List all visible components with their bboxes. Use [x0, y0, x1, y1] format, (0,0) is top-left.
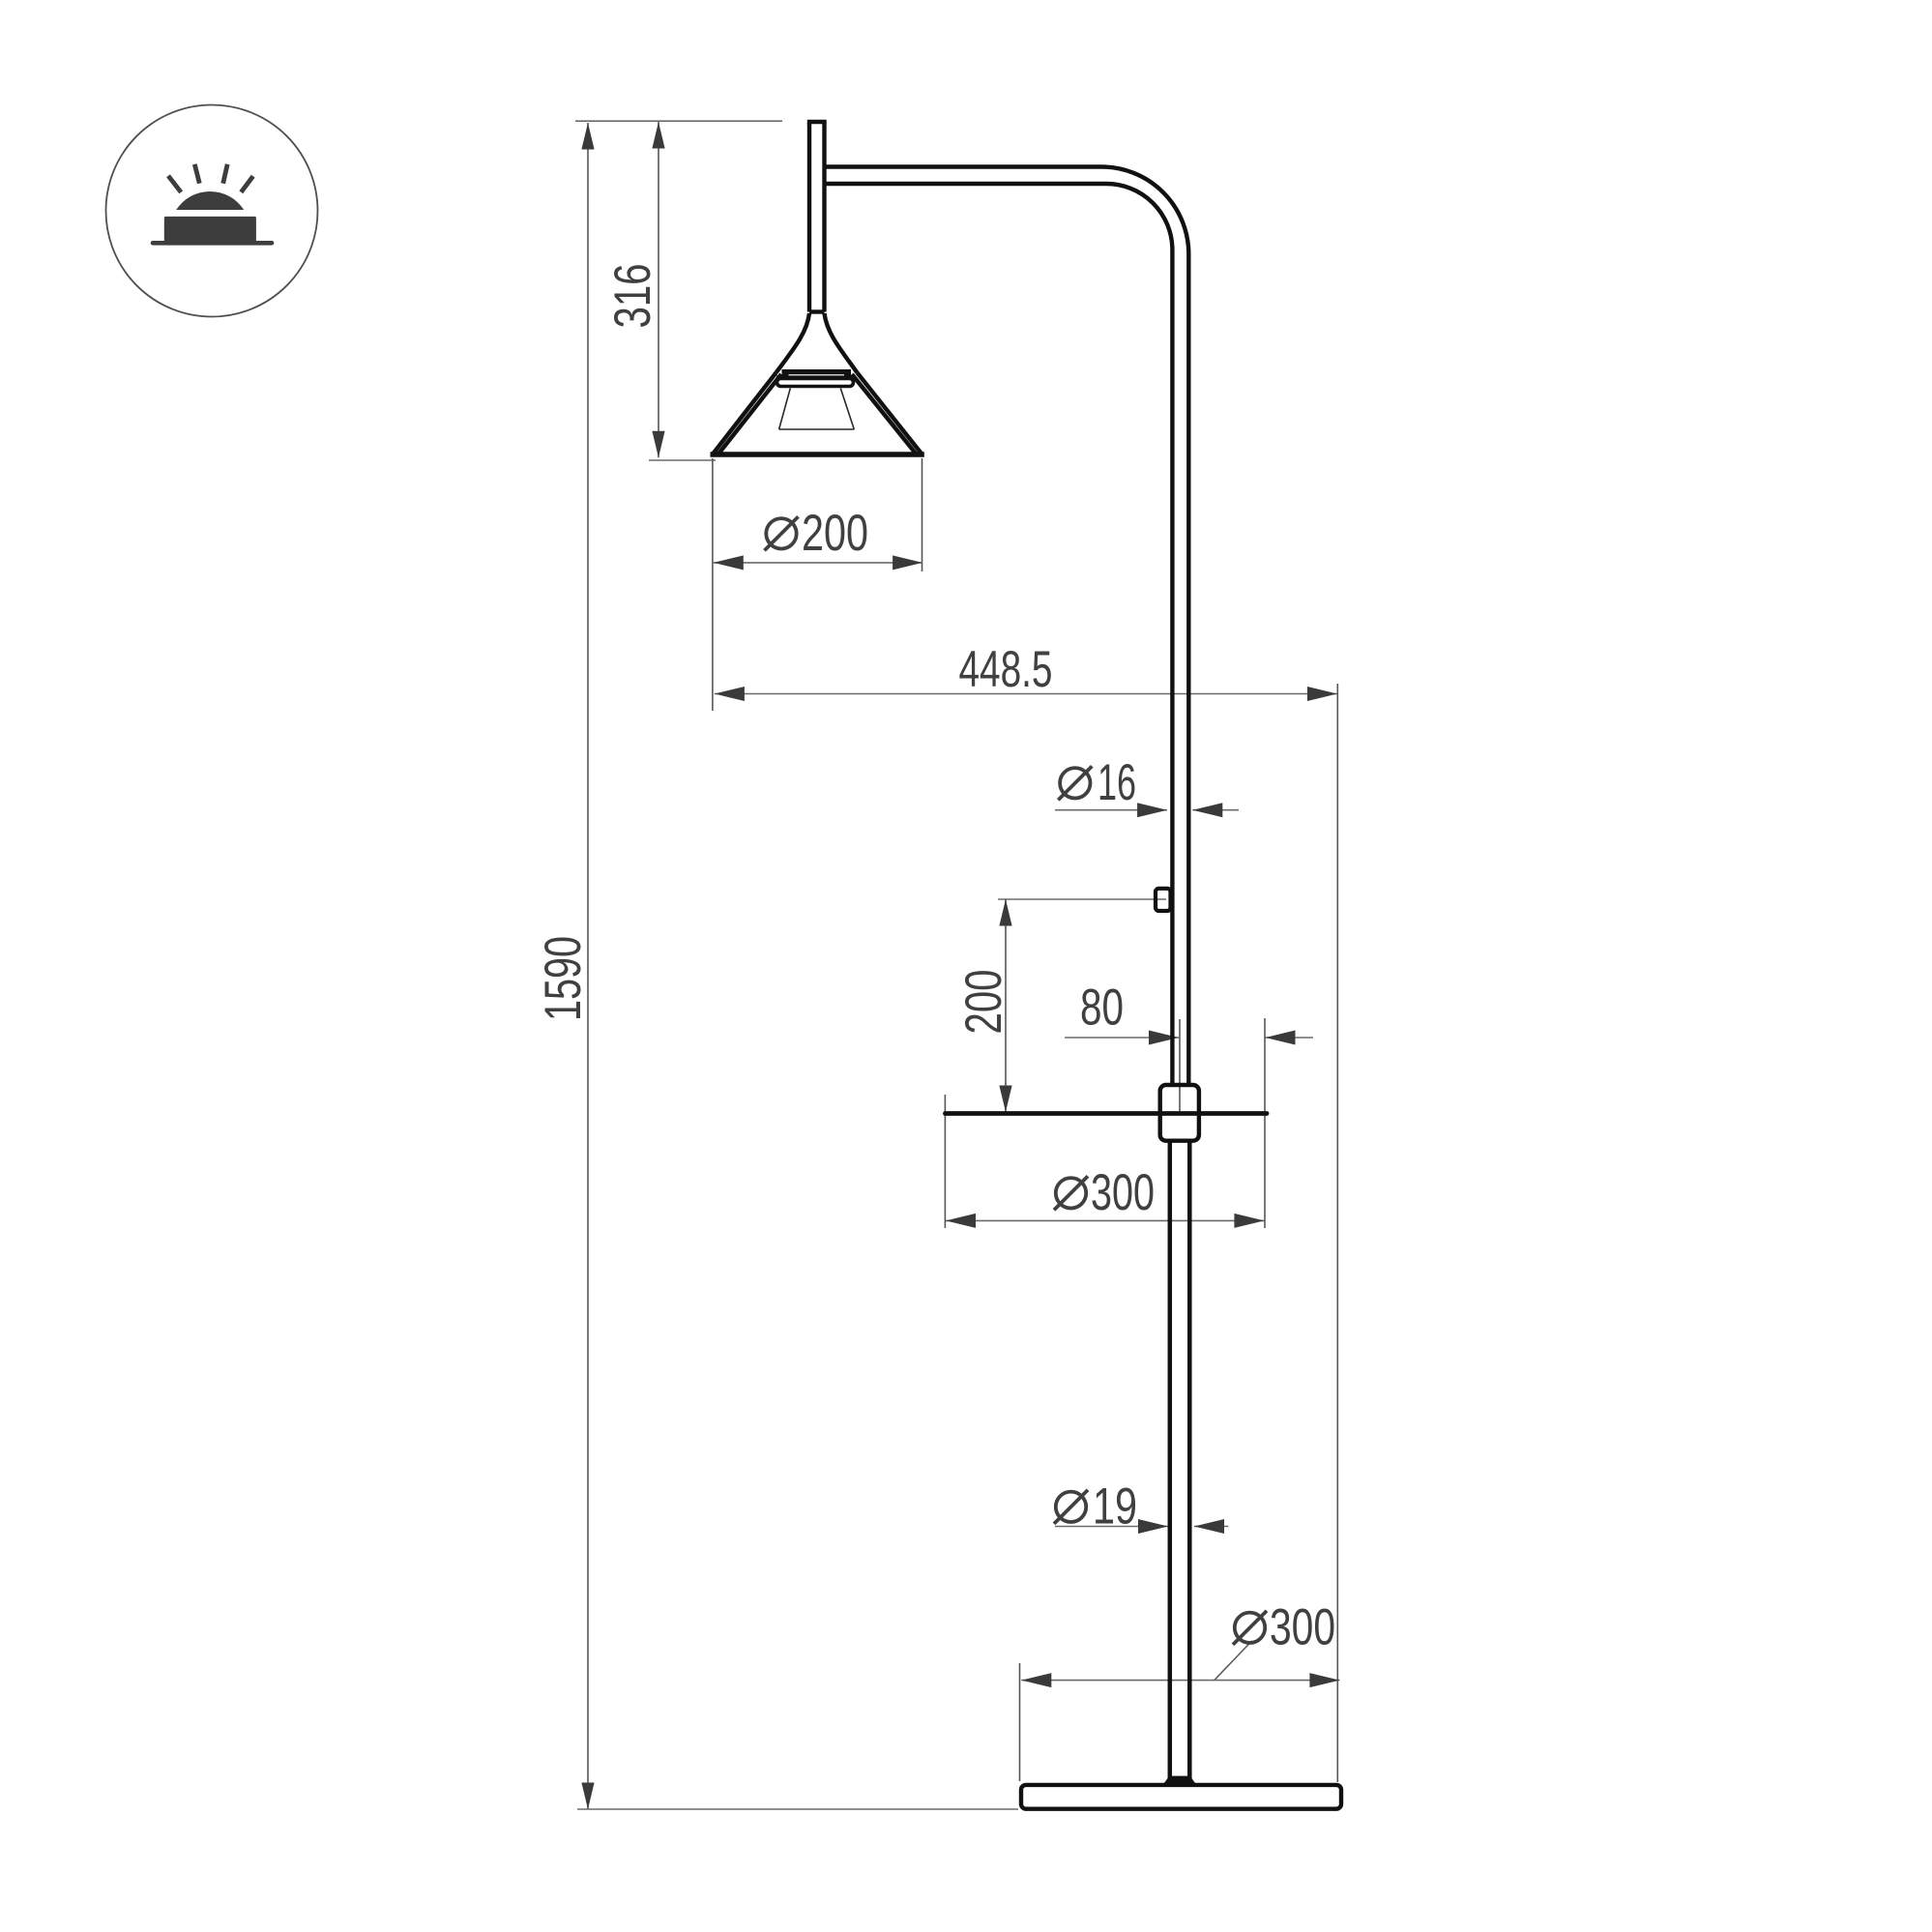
svg-text:316: 316	[604, 264, 661, 329]
svg-text:448.5: 448.5	[959, 641, 1053, 698]
svg-text:80: 80	[1080, 980, 1124, 1037]
svg-text:300: 300	[1270, 1599, 1335, 1656]
svg-text:1590: 1590	[535, 936, 592, 1021]
svg-text:200: 200	[955, 970, 1012, 1035]
svg-text:200: 200	[802, 505, 868, 562]
svg-text:19: 19	[1093, 1478, 1137, 1536]
svg-text:300: 300	[1091, 1164, 1155, 1221]
svg-text:16: 16	[1098, 754, 1136, 811]
